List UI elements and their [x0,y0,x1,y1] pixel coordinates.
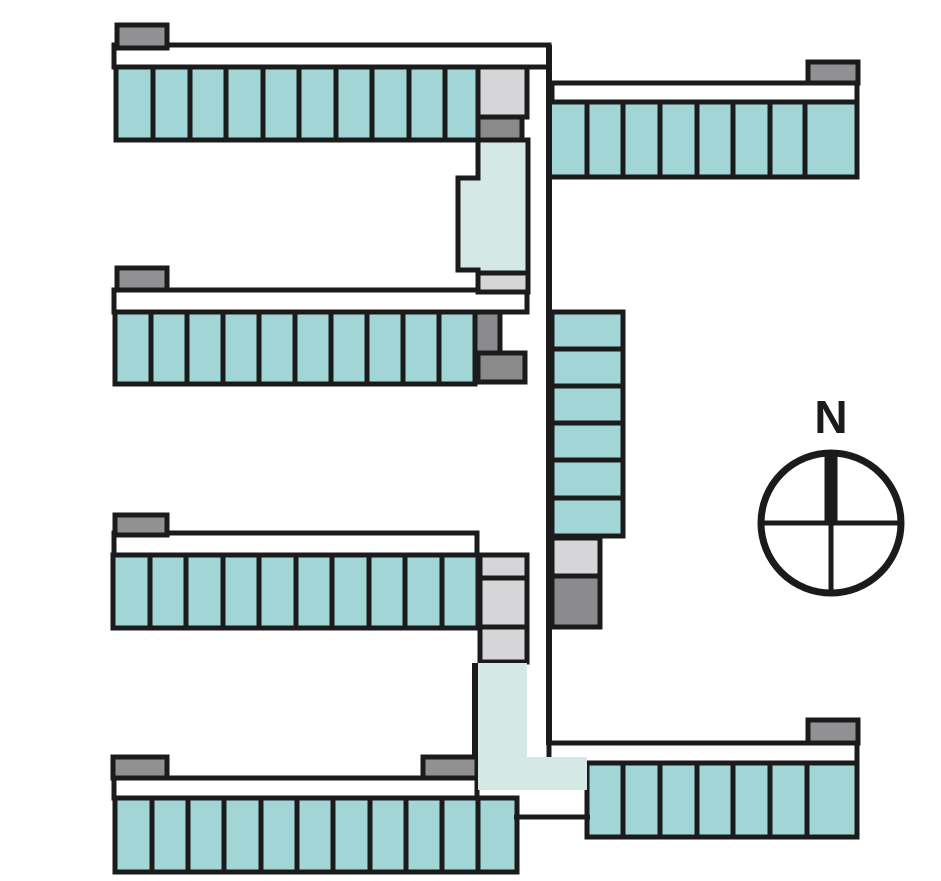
west-central-wing-stair-cap [117,268,167,290]
unit [805,102,857,177]
southwest-wing-stair-cap [113,757,167,778]
west-wing [113,515,527,662]
unit [770,763,807,837]
unit [223,555,259,628]
unit [587,102,623,177]
west-central-wing [114,268,527,384]
service-unit [480,627,527,662]
service-unit [478,67,527,117]
unit [409,67,445,140]
unit [116,67,153,140]
unit [331,312,367,384]
unit [478,798,517,872]
unit [442,798,478,872]
unit [113,555,150,628]
service-unit [480,578,527,627]
floor-plan: N [0,0,941,881]
unit [332,555,369,628]
unit [261,798,297,872]
unit [552,498,623,536]
northeast-wing-corridor-strip [552,83,857,102]
unit [552,349,623,386]
unit [259,555,296,628]
service-unit [552,576,600,627]
unit [115,312,151,384]
service-unit [552,538,600,576]
unit [296,555,332,628]
unit [439,312,475,384]
northeast-wing-stair-cap [808,62,858,83]
upper-corridor [458,140,528,273]
unit [552,460,623,498]
unit [190,67,226,140]
unit [660,102,697,177]
unit [367,312,403,384]
compass-north-bar [825,455,838,523]
unit [295,312,331,384]
unit [445,67,478,140]
southwest-wing-corridor-strip [114,778,477,798]
unit [186,555,223,628]
southwest-wing [113,757,517,872]
unit [151,312,187,384]
southeast-wing-corridor-strip [549,743,857,763]
unit [552,386,623,423]
service-unit [478,117,522,140]
unit [549,102,587,177]
unit [442,555,478,628]
southeast-wing-stair-cap [808,720,858,743]
unit [733,102,770,177]
unit [807,763,857,837]
unit [226,67,263,140]
unit [153,67,190,140]
compass-north-label: N [814,391,847,443]
unit [333,798,370,872]
southwest-wing-stair-cap [423,757,477,778]
northwest-wing-stair-cap [117,25,167,48]
west-wing-stair-cap [115,515,167,535]
unit [152,798,188,872]
northwest-wing-corridor-strip [114,45,549,67]
southeast-wing [549,720,858,837]
unit [223,312,259,384]
unit [370,798,406,872]
unit [150,555,186,628]
unit [372,67,409,140]
unit [115,798,152,872]
unit [187,312,223,384]
unit [623,102,660,177]
unit [403,312,439,384]
unit [660,763,697,837]
unit [406,798,442,872]
unit [405,555,442,628]
northeast-wing [549,62,858,177]
unit [623,763,660,837]
lower-corridor [478,663,587,790]
unit [552,423,623,460]
unit [224,798,261,872]
unit [259,312,295,384]
unit [297,798,333,872]
unit [770,102,805,177]
floor-plan-svg: N [0,0,941,881]
unit [299,67,336,140]
unit [733,763,770,837]
central-stack [552,312,623,627]
unit [552,312,623,349]
upper-corridor-landing [478,273,528,292]
unit [697,102,733,177]
unit [587,763,623,837]
unit [336,67,372,140]
unit [188,798,224,872]
northwest-wing [114,25,549,140]
west-central-wing-corridor-strip [114,290,527,312]
service-unit [480,555,527,578]
unit [263,67,299,140]
unit [369,555,405,628]
unit [697,763,733,837]
compass: N [761,391,901,593]
service-unit [475,312,500,353]
service-unit [478,353,525,382]
